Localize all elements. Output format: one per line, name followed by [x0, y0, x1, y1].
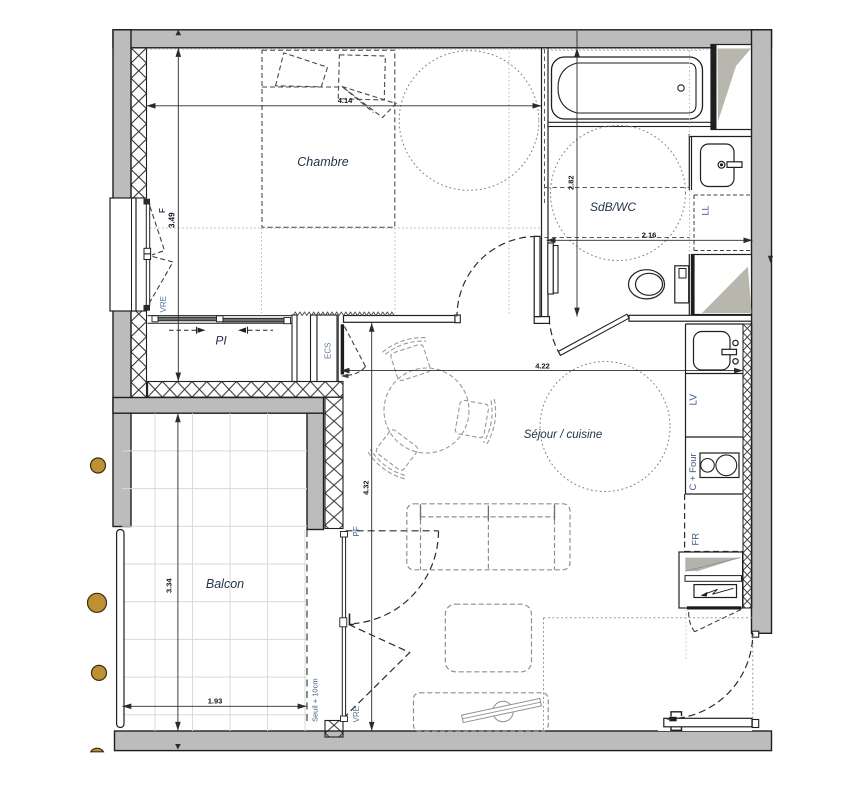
- svg-text:F: F: [158, 208, 167, 213]
- svg-text:SdB/WC: SdB/WC: [590, 200, 636, 214]
- svg-text:LV: LV: [689, 394, 700, 406]
- svg-text:3.34: 3.34: [165, 578, 174, 593]
- svg-text:1.93: 1.93: [208, 697, 223, 706]
- svg-text:Chambre: Chambre: [297, 155, 348, 169]
- svg-text:ECS: ECS: [324, 343, 333, 359]
- svg-text:2.16: 2.16: [642, 231, 657, 240]
- svg-text:Seuil + 10cm: Seuil + 10cm: [311, 678, 320, 722]
- svg-text:PI: PI: [215, 334, 227, 348]
- svg-text:VRE: VRE: [352, 706, 361, 722]
- svg-text:LL: LL: [701, 205, 711, 215]
- svg-text:4.22: 4.22: [535, 361, 550, 370]
- svg-text:2.82: 2.82: [567, 175, 576, 190]
- svg-text:3.49: 3.49: [168, 212, 177, 228]
- svg-text:4.14: 4.14: [338, 96, 353, 105]
- svg-text:Balcon: Balcon: [206, 577, 244, 591]
- svg-text:C + Four: C + Four: [688, 453, 699, 490]
- svg-text:FR: FR: [691, 533, 702, 546]
- svg-text:PF: PF: [352, 526, 361, 536]
- svg-text:VRE: VRE: [159, 296, 168, 312]
- svg-text:4.32: 4.32: [362, 480, 371, 495]
- svg-text:Séjour / cuisine: Séjour / cuisine: [524, 429, 603, 441]
